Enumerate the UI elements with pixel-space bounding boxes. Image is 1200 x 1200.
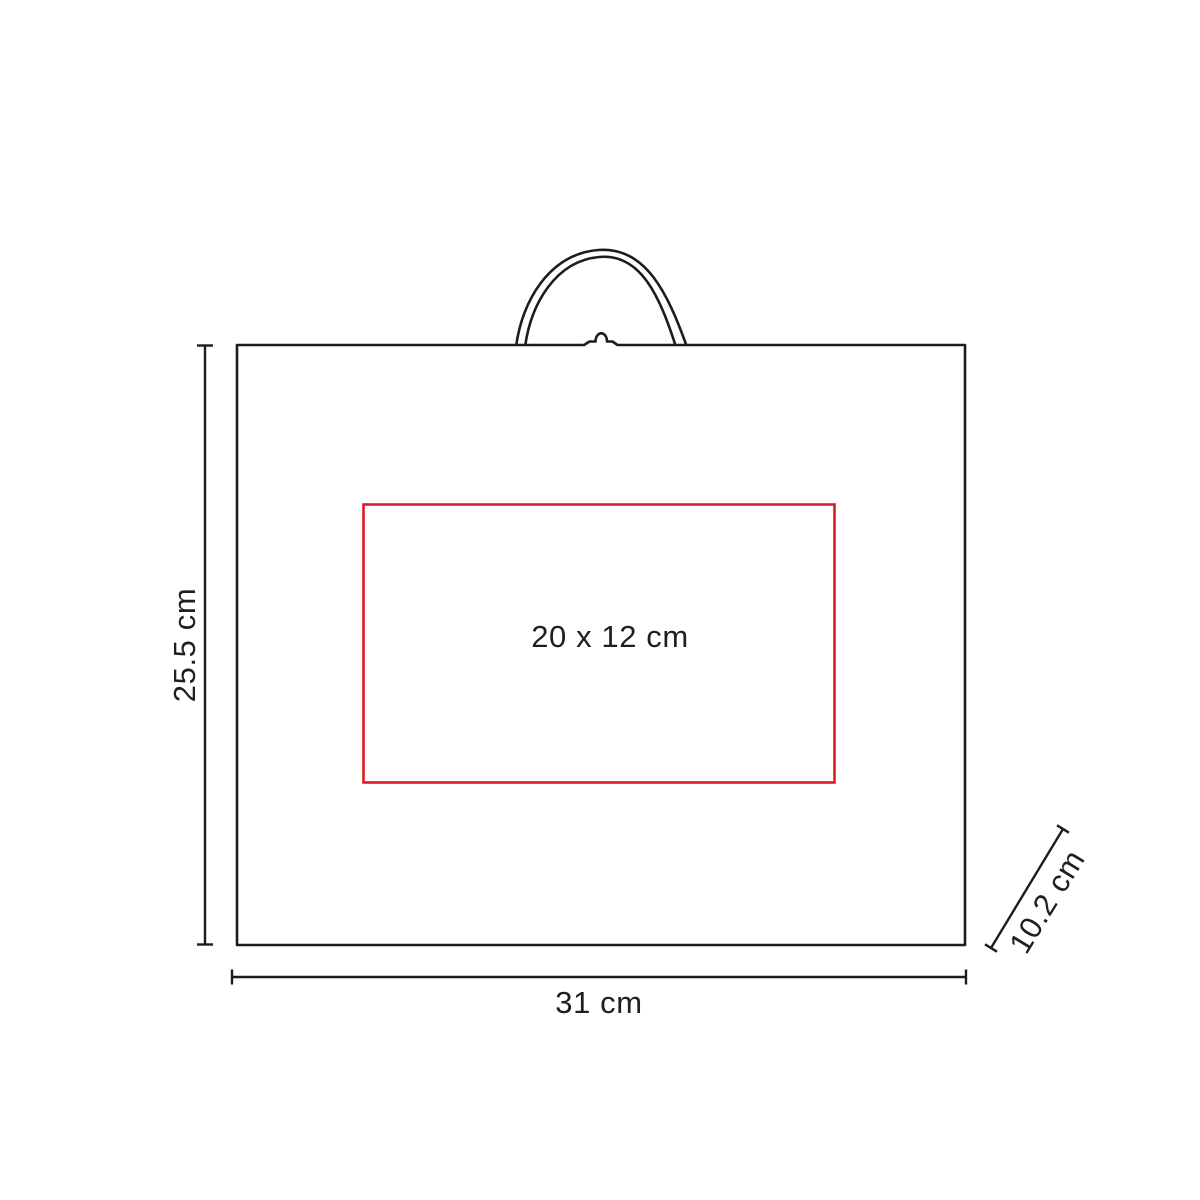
product-dimension-diagram: 20 x 12 cm 25.5 cm 31 cm 10.2 cm <box>0 0 1200 1200</box>
height-label: 25.5 cm <box>167 588 202 702</box>
bag-dimension-drawing: 20 x 12 cm 25.5 cm 31 cm 10.2 cm <box>0 0 1200 1200</box>
width-dimension: 31 cm <box>232 970 966 1021</box>
depth-label: 10.2 cm <box>1002 844 1092 960</box>
height-dimension: 25.5 cm <box>167 346 213 945</box>
depth-dimension-tick-bottom <box>985 944 997 951</box>
depth-dimension: 10.2 cm <box>985 825 1092 959</box>
print-area-label: 20 x 12 cm <box>531 619 689 654</box>
depth-dimension-tick-top <box>1057 825 1069 832</box>
width-label: 31 cm <box>555 985 642 1020</box>
